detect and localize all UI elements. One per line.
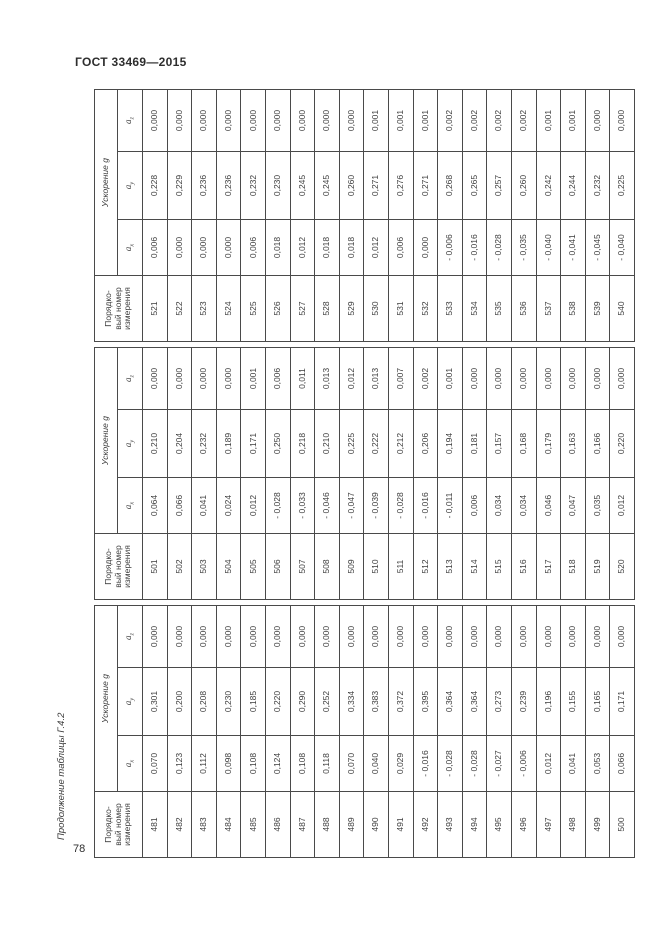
az-value-cell: 0,000 [536,348,561,410]
ay-value-cell: 0,212 [388,410,413,478]
ax-value-cell: 0,112 [192,736,217,792]
ay-value-cell: 0,334 [339,668,364,736]
ay-value-cell: 0,290 [290,668,315,736]
ax-value-cell: 0,046 [536,478,561,534]
ay-value-cell: 0,250 [265,410,290,478]
ax-value-cell: 0,066 [610,736,635,792]
measurement-number-cell: 526 [265,276,290,342]
az-value-cell: 0,000 [610,90,635,152]
table-row: 492- 0,0160,3950,000 [413,606,438,858]
table-row: 5020,0660,2040,000 [167,348,192,600]
measurement-number-cell: 497 [536,792,561,858]
ay-value-cell: 0,171 [610,668,635,736]
measurement-number-cell: 481 [143,792,168,858]
ay-value-cell: 0,194 [438,410,463,478]
table-row: 4890,0700,3340,000 [339,606,364,858]
ax-value-cell: - 0,040 [536,220,561,276]
column-header-measurement-number: Порядко- вый номер измерения [95,534,143,600]
ay-value-cell: 0,229 [167,152,192,220]
ax-value-cell: - 0,039 [364,478,389,534]
ax-value-cell: 0,018 [339,220,364,276]
ax-value-cell: - 0,028 [438,736,463,792]
az-value-cell: 0,002 [511,90,536,152]
ay-value-cell: 0,168 [511,410,536,478]
ax-value-cell: 0,000 [167,220,192,276]
column-header-ax: ax [118,478,143,534]
ax-value-cell: 0,012 [241,478,266,534]
measurement-number-cell: 494 [462,792,487,858]
measurement-number-cell: 529 [339,276,364,342]
ax-value-cell: 0,053 [585,736,610,792]
table-row: 511- 0,0280,2120,007 [388,348,413,600]
table-row: 5250,0060,2320,000 [241,90,266,342]
az-value-cell: 0,000 [241,606,266,668]
variable-subscript: y [129,182,136,185]
ay-value-cell: 0,271 [413,152,438,220]
table-block-rows-501-520: Порядко- вый номер измеренияУскорение ga… [94,348,613,600]
az-value-cell: 0,001 [413,90,438,152]
az-value-cell: 0,000 [216,348,241,410]
column-header-ay: ay [118,668,143,736]
az-value-cell: 0,000 [241,90,266,152]
table-row: 4820,1230,2000,000 [167,606,192,858]
measurement-number-cell: 530 [364,276,389,342]
ay-value-cell: 0,157 [487,410,512,478]
az-value-cell: 0,002 [413,348,438,410]
table-row: 513- 0,0110,1940,001 [438,348,463,600]
variable-symbol: a [123,443,133,448]
table-row: 5230,0000,2360,000 [192,90,217,342]
table-row: 540- 0,0400,2250,000 [610,90,635,342]
ay-value-cell: 0,196 [536,668,561,736]
variable-subscript: x [129,244,136,247]
measurement-number-cell: 499 [585,792,610,858]
measurement-number-cell: 486 [265,792,290,858]
ax-value-cell: 0,124 [265,736,290,792]
measurement-number-cell: 512 [413,534,438,600]
table-row: 512- 0,0160,2060,002 [413,348,438,600]
column-header-ax: ax [118,220,143,276]
ay-value-cell: 0,179 [536,410,561,478]
ay-value-cell: 0,268 [438,152,463,220]
table-row: 5320,0000,2710,001 [413,90,438,342]
az-value-cell: 0,000 [339,90,364,152]
az-value-cell: 0,000 [511,606,536,668]
ay-value-cell: 0,210 [143,410,168,478]
az-value-cell: 0,000 [585,348,610,410]
ax-value-cell: 0,012 [290,220,315,276]
ax-value-cell: - 0,028 [462,736,487,792]
measurement-number-cell: 503 [192,534,217,600]
measurement-number-cell: 523 [192,276,217,342]
az-value-cell: 0,002 [438,90,463,152]
measurement-number-cell: 520 [610,534,635,600]
column-header-ax: ax [118,736,143,792]
table-row: 5170,0460,1790,000 [536,348,561,600]
variable-symbol: a [123,185,133,190]
ax-value-cell: 0,035 [585,478,610,534]
measurement-number-cell: 495 [487,792,512,858]
ax-value-cell: - 0,047 [339,478,364,534]
ay-value-cell: 0,364 [462,668,487,736]
measurement-number-cell: 532 [413,276,438,342]
table-row: 536- 0,0350,2600,002 [511,90,536,342]
table-row: 535- 0,0280,2570,002 [487,90,512,342]
ax-value-cell: - 0,016 [462,220,487,276]
variable-symbol: a [123,378,133,383]
variable-subscript: z [129,117,136,120]
az-value-cell: 0,000 [265,90,290,152]
table-row: 5220,0000,2290,000 [167,90,192,342]
variable-symbol: a [123,763,133,768]
measurement-number-cell: 517 [536,534,561,600]
az-value-cell: 0,007 [388,348,413,410]
ay-value-cell: 0,260 [339,152,364,220]
measurement-number-cell: 518 [561,534,586,600]
ay-value-cell: 0,383 [364,668,389,736]
ax-value-cell: - 0,028 [487,220,512,276]
ay-value-cell: 0,163 [561,410,586,478]
az-value-cell: 0,000 [610,348,635,410]
ay-value-cell: 0,200 [167,668,192,736]
table-block-rows-481-500: Порядко- вый номер измеренияУскорение ga… [94,606,613,858]
measurement-number-cell: 515 [487,534,512,600]
az-value-cell: 0,000 [487,348,512,410]
table-row: 5280,0180,2450,000 [315,90,340,342]
ax-value-cell: - 0,035 [511,220,536,276]
ay-value-cell: 0,206 [413,410,438,478]
table-row: 5290,0180,2600,000 [339,90,364,342]
table-row: 4910,0290,3720,000 [388,606,413,858]
measurement-number-cell: 509 [339,534,364,600]
measurement-number-cell: 505 [241,534,266,600]
ay-value-cell: 0,260 [511,152,536,220]
az-value-cell: 0,000 [511,348,536,410]
az-value-cell: 0,000 [438,606,463,668]
table-row: 4990,0530,1650,000 [585,606,610,858]
ax-value-cell: - 0,006 [438,220,463,276]
ax-value-cell: - 0,016 [413,736,438,792]
column-header-ay: ay [118,410,143,478]
measurement-number-cell: 538 [561,276,586,342]
az-value-cell: 0,000 [462,606,487,668]
measurement-number-cell: 501 [143,534,168,600]
ay-value-cell: 0,244 [561,152,586,220]
az-value-cell: 0,000 [610,606,635,668]
az-value-cell: 0,000 [216,606,241,668]
table-row: 5200,0120,2200,000 [610,348,635,600]
table-row: 5030,0410,2320,000 [192,348,217,600]
az-value-cell: 0,002 [487,90,512,152]
az-value-cell: 0,013 [315,348,340,410]
measurement-number-cell: 508 [315,534,340,600]
measurement-number-cell: 490 [364,792,389,858]
ay-value-cell: 0,218 [290,410,315,478]
ay-value-cell: 0,230 [265,152,290,220]
ay-value-cell: 0,181 [462,410,487,478]
table-row: 4970,0120,1960,000 [536,606,561,858]
table-row: 510- 0,0390,2220,013 [364,348,389,600]
measurement-number-cell: 540 [610,276,635,342]
ax-value-cell: 0,012 [364,220,389,276]
table-row: 5260,0180,2300,000 [265,90,290,342]
variable-symbol: a [123,505,133,510]
ay-value-cell: 0,232 [585,152,610,220]
az-value-cell: 0,000 [561,606,586,668]
ax-value-cell: - 0,016 [413,478,438,534]
az-value-cell: 0,000 [536,606,561,668]
measurement-number-cell: 500 [610,792,635,858]
ax-value-cell: - 0,028 [388,478,413,534]
table-row: 509- 0,0470,2250,012 [339,348,364,600]
ay-value-cell: 0,245 [315,152,340,220]
table-continuation-caption-text: Продолжение таблицы Г.4.2 [56,688,67,840]
ax-value-cell: 0,006 [462,478,487,534]
az-value-cell: 0,000 [364,606,389,668]
variable-subscript: z [129,375,136,378]
measurement-number-cell: 533 [438,276,463,342]
column-header-az: az [118,348,143,410]
table-row: 533- 0,0060,2680,002 [438,90,463,342]
ax-value-cell: 0,108 [290,736,315,792]
measurement-table: Порядко- вый номер измеренияУскорение ga… [94,605,635,858]
table-row: 5310,0060,2760,001 [388,90,413,342]
table-row: 494- 0,0280,3640,000 [462,606,487,858]
measurement-number-cell: 513 [438,534,463,600]
az-value-cell: 0,000 [487,606,512,668]
az-value-cell: 0,000 [413,606,438,668]
column-header-az: az [118,606,143,668]
az-value-cell: 0,000 [167,348,192,410]
az-value-cell: 0,000 [192,606,217,668]
az-value-cell: 0,013 [364,348,389,410]
ax-value-cell: 0,064 [143,478,168,534]
az-value-cell: 0,006 [265,348,290,410]
measurement-number-cell: 531 [388,276,413,342]
ax-value-cell: 0,000 [192,220,217,276]
ax-value-cell: 0,012 [610,478,635,534]
table-row: 5000,0660,1710,000 [610,606,635,858]
measurement-number-cell: 506 [265,534,290,600]
ax-value-cell: 0,070 [339,736,364,792]
variable-subscript: x [129,760,136,763]
measurement-number-cell: 482 [167,792,192,858]
column-header-ay: ay [118,152,143,220]
ax-value-cell: - 0,040 [610,220,635,276]
ax-value-cell: 0,012 [536,736,561,792]
ay-value-cell: 0,273 [487,668,512,736]
az-value-cell: 0,000 [388,606,413,668]
table-row: 5050,0120,1710,001 [241,348,266,600]
az-value-cell: 0,001 [388,90,413,152]
table-row: 4810,0700,3010,000 [143,606,168,858]
ax-value-cell: 0,041 [561,736,586,792]
az-value-cell: 0,001 [561,90,586,152]
table-body: 4810,0700,3010,0004820,1230,2000,0004830… [143,606,635,858]
ax-value-cell: - 0,011 [438,478,463,534]
measurement-number-cell: 493 [438,792,463,858]
measurement-number-cell: 539 [585,276,610,342]
az-value-cell: 0,012 [339,348,364,410]
ay-value-cell: 0,242 [536,152,561,220]
ax-value-cell: 0,018 [315,220,340,276]
ax-value-cell: 0,118 [315,736,340,792]
variable-subscript: y [129,440,136,443]
table-row: 495- 0,0270,2730,000 [487,606,512,858]
az-value-cell: 0,002 [462,90,487,152]
az-value-cell: 0,000 [561,348,586,410]
az-value-cell: 0,001 [364,90,389,152]
ax-value-cell: 0,034 [487,478,512,534]
measurement-number-cell: 485 [241,792,266,858]
az-value-cell: 0,011 [290,348,315,410]
ax-value-cell: - 0,006 [511,736,536,792]
measurement-number-cell: 487 [290,792,315,858]
table-row: 4830,1120,2080,000 [192,606,217,858]
az-value-cell: 0,000 [143,606,168,668]
az-value-cell: 0,000 [462,348,487,410]
ax-value-cell: 0,006 [143,220,168,276]
column-header-measurement-number: Порядко- вый номер измерения [95,792,143,858]
table-row: 4900,0400,3830,000 [364,606,389,858]
table-row: 4840,0980,2300,000 [216,606,241,858]
ax-value-cell: - 0,033 [290,478,315,534]
measurement-number-cell: 537 [536,276,561,342]
az-value-cell: 0,000 [315,90,340,152]
column-header-acceleration: Ускорение g [95,90,118,276]
measurement-number-cell: 483 [192,792,217,858]
table-row: 4850,1080,1850,000 [241,606,266,858]
ax-value-cell: - 0,045 [585,220,610,276]
az-value-cell: 0,001 [536,90,561,152]
ay-value-cell: 0,372 [388,668,413,736]
measurement-number-cell: 507 [290,534,315,600]
ax-value-cell: 0,066 [167,478,192,534]
column-header-acceleration: Ускорение g [95,606,118,792]
az-value-cell: 0,000 [216,90,241,152]
measurement-number-cell: 522 [167,276,192,342]
ax-value-cell: 0,098 [216,736,241,792]
table-row: 4980,0410,1550,000 [561,606,586,858]
ay-value-cell: 0,265 [462,152,487,220]
ay-value-cell: 0,228 [143,152,168,220]
table-row: 4870,1080,2900,000 [290,606,315,858]
ay-value-cell: 0,239 [511,668,536,736]
table-row: 506- 0,0280,2500,006 [265,348,290,600]
ay-value-cell: 0,236 [192,152,217,220]
document-header: ГОСТ 33469—2015 [75,55,187,69]
ay-value-cell: 0,232 [241,152,266,220]
table-row: 5010,0640,2100,000 [143,348,168,600]
measurement-number-cell: 534 [462,276,487,342]
az-value-cell: 0,000 [290,90,315,152]
az-value-cell: 0,001 [438,348,463,410]
table-row: 496- 0,0060,2390,000 [511,606,536,858]
variable-subscript: x [129,502,136,505]
ax-value-cell: 0,108 [241,736,266,792]
measurement-number-cell: 496 [511,792,536,858]
ay-value-cell: 0,225 [610,152,635,220]
measurement-number-cell: 498 [561,792,586,858]
ax-value-cell: 0,018 [265,220,290,276]
variable-symbol: a [123,636,133,641]
column-header-acceleration: Ускорение g [95,348,118,534]
ay-value-cell: 0,230 [216,668,241,736]
variable-symbol: a [123,701,133,706]
table-row: 4860,1240,2200,000 [265,606,290,858]
column-header-measurement-number: Порядко- вый номер измерения [95,276,143,342]
measurement-number-cell: 521 [143,276,168,342]
az-value-cell: 0,000 [192,348,217,410]
ax-value-cell: 0,006 [241,220,266,276]
measurement-number-cell: 528 [315,276,340,342]
table-row: 493- 0,0280,3640,000 [438,606,463,858]
ay-value-cell: 0,189 [216,410,241,478]
ay-value-cell: 0,208 [192,668,217,736]
az-value-cell: 0,000 [265,606,290,668]
az-value-cell: 0,000 [585,606,610,668]
measurement-number-cell: 484 [216,792,241,858]
az-value-cell: 0,000 [339,606,364,668]
measurement-number-cell: 511 [388,534,413,600]
az-value-cell: 0,000 [585,90,610,152]
ax-value-cell: - 0,041 [561,220,586,276]
variable-symbol: a [123,247,133,252]
measurement-number-cell: 516 [511,534,536,600]
variable-subscript: z [129,633,136,636]
table-row: 5160,0340,1680,000 [511,348,536,600]
measurement-number-cell: 504 [216,534,241,600]
measurement-number-cell: 488 [315,792,340,858]
table-row: 539- 0,0450,2320,000 [585,90,610,342]
ay-value-cell: 0,252 [315,668,340,736]
measurement-table: Порядко- вый номер измеренияУскорение ga… [94,89,635,342]
ay-value-cell: 0,364 [438,668,463,736]
measurement-number-cell: 524 [216,276,241,342]
ax-value-cell: 0,024 [216,478,241,534]
table-row: 5140,0060,1810,000 [462,348,487,600]
ay-value-cell: 0,395 [413,668,438,736]
table-row: 537- 0,0400,2420,001 [536,90,561,342]
measurement-number-cell: 535 [487,276,512,342]
ay-value-cell: 0,204 [167,410,192,478]
table-continuation-caption: Продолжение таблицы Г.4.2 [56,688,72,840]
measurement-number-cell: 525 [241,276,266,342]
measurement-number-cell: 514 [462,534,487,600]
document-page: ГОСТ 33469—2015 Продолжение таблицы Г.4.… [0,0,661,935]
ax-value-cell: 0,040 [364,736,389,792]
column-header-az: az [118,90,143,152]
measurement-number-cell: 502 [167,534,192,600]
ay-value-cell: 0,210 [315,410,340,478]
variable-subscript: y [129,698,136,701]
measurement-number-cell: 491 [388,792,413,858]
ay-value-cell: 0,271 [364,152,389,220]
ax-value-cell: 0,029 [388,736,413,792]
measurement-number-cell: 527 [290,276,315,342]
ay-value-cell: 0,222 [364,410,389,478]
ay-value-cell: 0,165 [585,668,610,736]
ay-value-cell: 0,232 [192,410,217,478]
az-value-cell: 0,000 [143,348,168,410]
measurement-number-cell: 519 [585,534,610,600]
ay-value-cell: 0,171 [241,410,266,478]
table-body: 5010,0640,2100,0005020,0660,2040,0005030… [143,348,635,600]
ay-value-cell: 0,276 [388,152,413,220]
ax-value-cell: 0,047 [561,478,586,534]
table-row: 5040,0240,1890,000 [216,348,241,600]
table-row: 534- 0,0160,2650,002 [462,90,487,342]
